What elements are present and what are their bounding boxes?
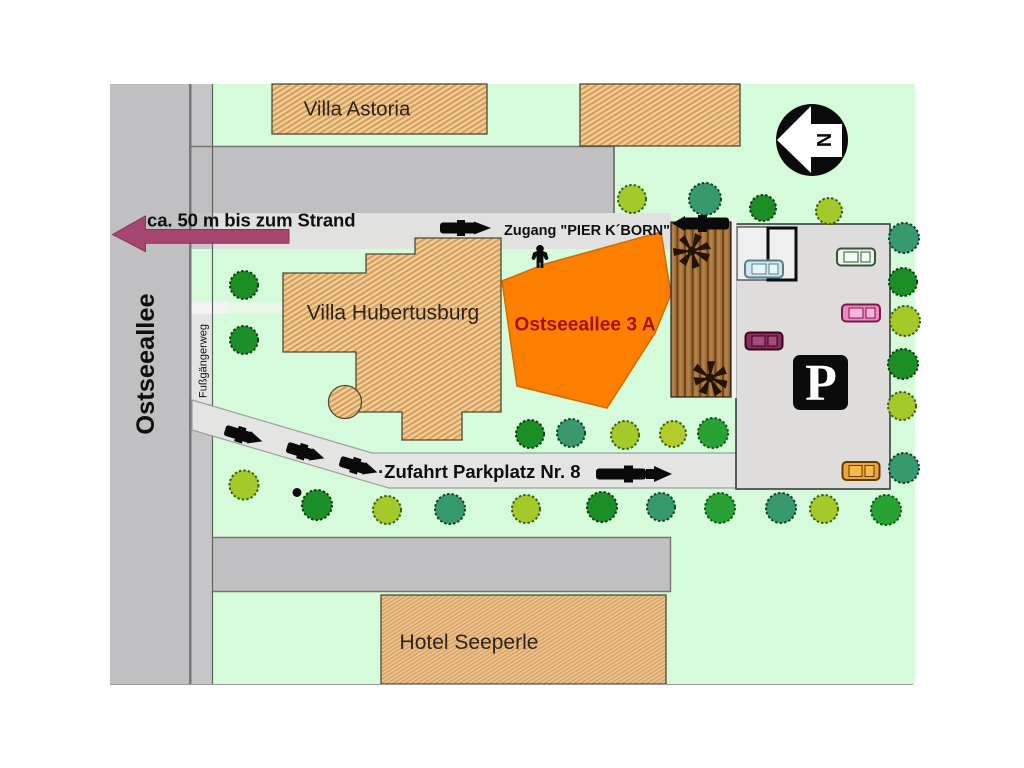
svg-text:Fußgängerweg: Fußgängerweg: [198, 324, 210, 398]
svg-text:Hotel Seeperle: Hotel Seeperle: [400, 631, 539, 654]
svg-text:P: P: [805, 355, 837, 412]
svg-text:ca. 50 m bis zum Strand: ca. 50 m bis zum Strand: [147, 210, 355, 231]
svg-text:Ostseeallee: Ostseeallee: [132, 293, 160, 434]
svg-text:Zugang "PIER K´BORN": Zugang "PIER K´BORN": [504, 223, 670, 239]
svg-text:N: N: [812, 133, 834, 147]
svg-text:Villa Hubertusburg: Villa Hubertusburg: [307, 302, 479, 325]
svg-text:Villa Astoria: Villa Astoria: [304, 98, 411, 121]
svg-text:·Zufahrt Parkplatz Nr. 8: ·Zufahrt Parkplatz Nr. 8: [378, 461, 581, 482]
svg-text:Ostseeallee 3 A: Ostseeallee 3 A: [514, 315, 655, 336]
